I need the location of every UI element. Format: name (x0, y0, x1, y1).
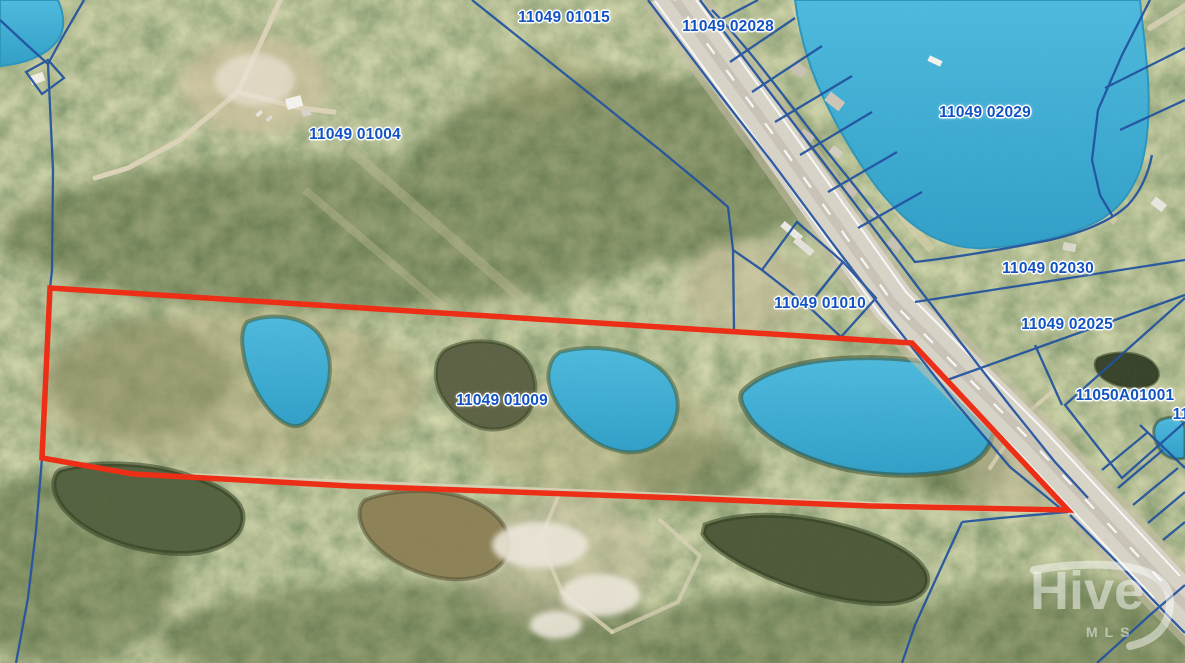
photo-grain-overlay (0, 0, 1185, 663)
map-viewport[interactable]: 11049 01015 11049 02028 11049 02029 1104… (0, 0, 1185, 663)
aerial-imagery (0, 0, 1185, 663)
